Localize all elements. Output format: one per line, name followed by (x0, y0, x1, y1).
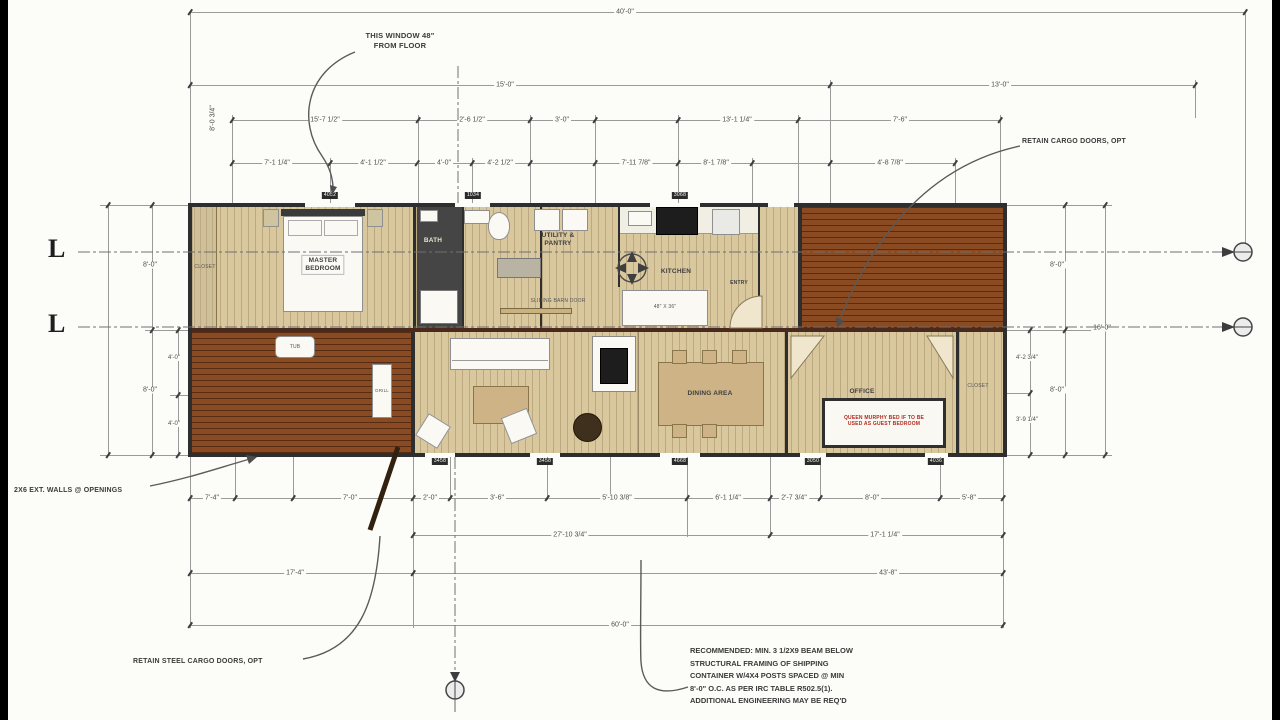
dim-line (1007, 393, 1030, 394)
dim-line (190, 498, 1003, 499)
dim: 5'-10 3/8" (600, 495, 634, 502)
dim: 4'-0" (166, 355, 182, 361)
window-office-2 (925, 453, 948, 457)
structural-note-line4: 8'-0" O.C. AS PER IRC TABLE R502.5(1). (690, 683, 853, 696)
letterbox-right (1272, 0, 1280, 720)
window-master (305, 203, 355, 207)
dim: 8'-0" (1048, 262, 1066, 269)
dim-line (190, 12, 1245, 13)
structural-note-line3: CONTAINER W/4X4 POSTS SPACED @ MIN (690, 670, 853, 683)
dim-line (955, 158, 956, 203)
refrigerator (712, 209, 740, 235)
utility-pantry-label: UTILITY & PANTRY (542, 232, 575, 248)
grill-label: GRILL (375, 388, 389, 394)
hall-vanity (464, 210, 490, 224)
dim-line (413, 535, 1003, 536)
hall-dresser (497, 258, 541, 278)
dim: 4'-0" (435, 160, 453, 167)
dim: 4'-8 7/8" (875, 160, 905, 167)
dim: 17'-4" (284, 570, 306, 577)
dim: 8'-1 7/8" (701, 160, 731, 167)
dim: 7'-11 7/8" (620, 160, 653, 167)
dim: 8'-0" (1048, 387, 1066, 394)
dim: 27'-10 3/4" (551, 532, 588, 539)
section-marker-icon-right-bottom (1222, 318, 1252, 336)
sliding-barn-door-label: SLIDING BARN DOOR (530, 298, 585, 304)
toilet (488, 212, 510, 240)
dim-line (413, 457, 414, 628)
dim: 3'-9 1/4" (1014, 417, 1040, 423)
dim: 15'-0" (494, 82, 516, 89)
dim-line (752, 158, 753, 203)
window-dining (660, 453, 700, 457)
range (656, 207, 698, 235)
window-tag: 4036 (928, 458, 944, 465)
master-bedroom-label: MASTER BEDROOM (301, 255, 344, 275)
dim-line (190, 625, 1003, 626)
dim: 7'-1 1/4" (262, 160, 292, 167)
bed-headboard (281, 209, 365, 216)
dining-area-label: DINING AREA (688, 390, 733, 398)
dim: 6'-1 1/4" (713, 495, 743, 502)
section-marker-icon-bottom (446, 672, 464, 712)
dim-line (190, 85, 1195, 86)
letterbox-left (0, 0, 8, 720)
round-side-table (573, 413, 602, 442)
dim-line (1003, 457, 1004, 628)
window-tag: 4052 (322, 192, 338, 199)
sofa-seat-line (452, 360, 548, 361)
utility-label-line1: UTILITY & (542, 232, 575, 240)
window-note-line2: FROM FLOOR (355, 41, 445, 51)
pillow-left (288, 220, 322, 236)
dining-chair-3 (732, 350, 747, 364)
dim: 2'-6 1/2" (457, 117, 487, 124)
dim-line (108, 205, 109, 455)
wall-bath-hall (462, 207, 464, 328)
window-living-1 (425, 453, 455, 457)
retain-cargo-doors-note: RETAIN CARGO DOORS, OPT (1022, 137, 1126, 146)
window-tag: 3458 (432, 458, 448, 465)
office-label: OFFICE (849, 388, 874, 396)
kitchen-sink (628, 211, 652, 226)
murphy-note-line2: USED AS GUEST BEDROOM (844, 421, 924, 427)
mid-beam-wall (188, 328, 1007, 332)
dining-chair-2 (702, 350, 717, 364)
window-tag: 3068 (672, 192, 688, 199)
bath-sink (420, 210, 438, 222)
dim-line (1007, 205, 1112, 206)
dim: 8'-0" (863, 495, 881, 502)
closet-left-label: CLOSET (194, 264, 215, 270)
dim: 4'-0" (166, 421, 182, 427)
west-wall (188, 203, 192, 457)
dim: 4'-2 1/2" (485, 160, 515, 167)
wall-dining-office (785, 332, 788, 453)
retain-steel-cargo-doors-note: RETAIN STEEL CARGO DOORS, OPT (133, 657, 263, 666)
section-marker-icon-right-top (1222, 243, 1252, 261)
section-letter-bottom: L (48, 309, 65, 339)
retain-steel-leader (303, 536, 380, 659)
island-size-label: 48" X 36" (654, 304, 677, 310)
dining-chair-5 (702, 424, 717, 438)
dim-line (798, 115, 799, 203)
dim: 7'-6" (891, 117, 909, 124)
dim-overall-top: 40'-0" (614, 9, 636, 16)
dim: 8'-0" (141, 387, 159, 394)
washer (534, 209, 560, 231)
dim: 8'-0" (141, 262, 159, 269)
structural-note: RECOMMENDED: MIN. 3 1/2X9 BEAM BELOW STR… (690, 645, 853, 708)
window-tag: 3050 (805, 458, 821, 465)
dim: 7'-0" (341, 495, 359, 502)
dim-line (1007, 455, 1112, 456)
nightstand-left (263, 209, 279, 227)
dryer (562, 209, 588, 231)
window-tag: 1034 (465, 192, 481, 199)
bath-tub-shower (420, 290, 458, 324)
entry-label: ENTRY (730, 280, 748, 286)
window-note: THIS WINDOW 48" FROM FLOOR (355, 31, 445, 51)
murphy-bed-note: QUEEN MURPHY BED IF TO BE USED AS GUEST … (844, 415, 924, 428)
dim: 43'-8" (877, 570, 899, 577)
dim-line (100, 205, 188, 206)
dim-line (190, 12, 191, 203)
window-living-2 (530, 453, 560, 457)
closet-right-label: CLOSET (967, 383, 988, 389)
dim: 2'-0" (421, 495, 439, 502)
dim: 2'-7 3/4" (779, 495, 809, 502)
master-bedroom-label-line2: BEDROOM (305, 265, 340, 273)
ext-walls-note: 2X6 EXT. WALLS @ OPENINGS (14, 486, 122, 495)
structural-note-line5: ADDITIONAL ENGINEERING MAY BE REQ'D (690, 695, 853, 708)
dim-line (170, 395, 190, 396)
pillow-right (324, 220, 358, 236)
bath-label: BATH (424, 237, 442, 245)
east-wall-cargo-doors (1003, 203, 1007, 457)
dim: 13'-1 1/4" (720, 117, 754, 124)
structural-note-line1: RECOMMENDED: MIN. 3 1/2X9 BEAM BELOW (690, 645, 853, 658)
wall-bedroom-bath (413, 207, 416, 328)
dim-line (830, 80, 831, 203)
open-cargo-door-leaf (370, 447, 398, 530)
wood-stove (600, 348, 628, 384)
tub-label: TUB (290, 344, 301, 350)
window-tag: 3458 (537, 458, 553, 465)
wall-entry-deck-cargo (798, 207, 802, 328)
dim: 3'-0" (553, 117, 571, 124)
dining-chair-1 (672, 350, 687, 364)
door-entry-top (768, 203, 794, 207)
structural-note-line2: STRUCTURAL FRAMING OF SHIPPING (690, 658, 853, 671)
dim: 4'-2 3/4" (1014, 355, 1040, 361)
dim: 15'-7 1/2" (308, 117, 342, 124)
kitchen-label: KITCHEN (661, 268, 691, 276)
south-wall (188, 453, 1007, 457)
dim-line (1245, 12, 1246, 243)
dim-overall-bottom: 60'-0" (609, 622, 631, 629)
window-tag: 4668 (672, 458, 688, 465)
dim: 16'-0" (1091, 325, 1113, 332)
utility-label-line2: PANTRY (542, 240, 575, 248)
dim-line (1000, 115, 1001, 203)
master-bedroom-label-line1: MASTER (305, 257, 340, 265)
dim: 7'-4" (203, 495, 221, 502)
dim: 5'-8" (960, 495, 978, 502)
floor-plan-canvas: MASTER BEDROOM BATH UTILITY & PANTRY KIT… (0, 0, 1280, 720)
window-office-1 (800, 453, 826, 457)
upper-right-deck (800, 207, 1003, 328)
section-letter-top: L (48, 234, 65, 264)
wall-office-closet (956, 332, 959, 453)
dining-chair-4 (672, 424, 687, 438)
dim-line (190, 457, 191, 628)
dim: 17'-1 1/4" (868, 532, 902, 539)
dim: 4'-1 1/2" (358, 160, 388, 167)
dim: 3'-6" (488, 495, 506, 502)
window-note-line1: THIS WINDOW 48" (355, 31, 445, 41)
barn-door (500, 308, 572, 314)
sofa (450, 338, 550, 370)
nightstand-right (367, 209, 383, 227)
dim: 13'-0" (989, 82, 1011, 89)
dim-line (232, 120, 1000, 121)
wall-kitchen-entry (758, 207, 760, 328)
container-joint (638, 332, 639, 453)
dim: 8'-0 3/4" (210, 103, 217, 133)
